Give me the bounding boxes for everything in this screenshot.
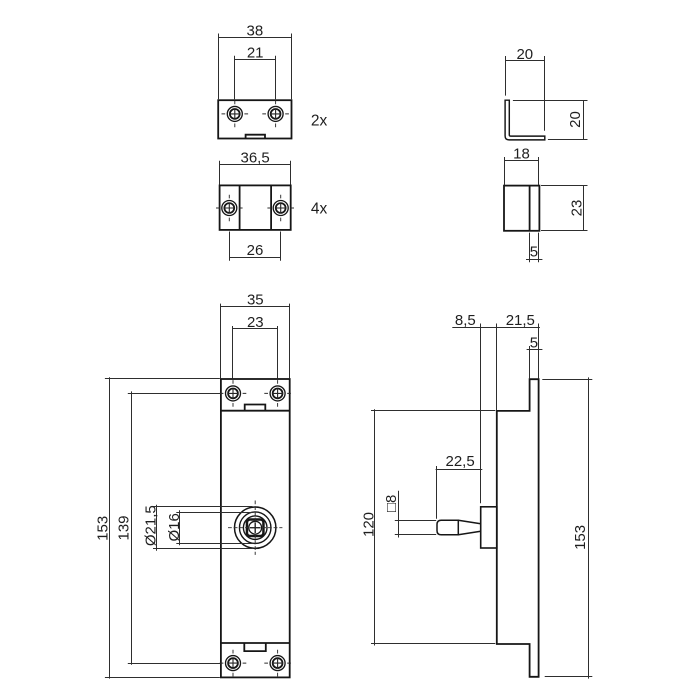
svg-text:5: 5 (530, 335, 538, 352)
svg-text:20: 20 (516, 46, 533, 63)
svg-text:35: 35 (247, 291, 264, 308)
svg-text:21,5: 21,5 (506, 312, 535, 329)
svg-text:18: 18 (513, 145, 530, 162)
svg-text:22,5: 22,5 (445, 453, 474, 470)
svg-text:2x: 2x (311, 112, 328, 129)
svg-text:139: 139 (116, 515, 133, 540)
svg-text:153: 153 (572, 525, 589, 550)
svg-text:153: 153 (95, 516, 112, 541)
svg-text:20: 20 (567, 111, 584, 128)
svg-text:38: 38 (247, 22, 264, 39)
svg-text:4x: 4x (311, 201, 328, 218)
svg-text:5: 5 (530, 243, 538, 260)
svg-text:8,5: 8,5 (455, 312, 476, 329)
svg-text:26: 26 (247, 242, 264, 259)
svg-text:□8: □8 (383, 495, 400, 512)
svg-text:23: 23 (568, 200, 585, 217)
svg-text:Ø21,5: Ø21,5 (143, 505, 160, 546)
svg-text:Ø16: Ø16 (166, 513, 183, 541)
svg-text:21: 21 (247, 45, 264, 62)
svg-text:36,5: 36,5 (240, 149, 269, 166)
svg-text:23: 23 (247, 314, 264, 331)
svg-text:120: 120 (361, 512, 378, 537)
